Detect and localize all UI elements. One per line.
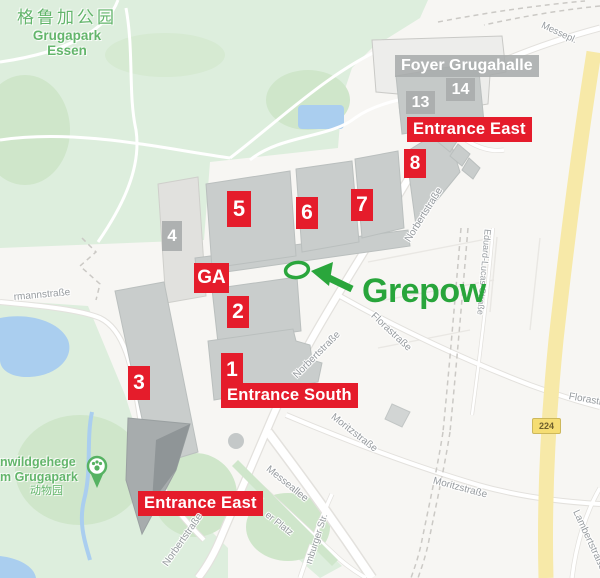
hall-5-badge: 5 <box>227 191 251 227</box>
park-title-cn: 格鲁加公园 <box>2 8 132 28</box>
park-title-en1: Grugapark <box>2 28 132 44</box>
foyer-grugahalle-label: Foyer Grugahalle <box>395 55 539 77</box>
zoo-label-cn: 动物园 <box>0 485 86 498</box>
park-title: 格鲁加公园 Grugapark Essen <box>2 8 132 59</box>
hall-5-building <box>206 171 296 268</box>
entrance-east-bottom-label: Entrance East <box>138 491 263 516</box>
hall-6-badge: 6 <box>296 197 318 229</box>
hall-3-badge: 3 <box>128 366 150 400</box>
hall-ga-badge: GA <box>194 263 229 293</box>
hall-13-badge: 13 <box>406 91 435 114</box>
grepow-annotation: Grepow <box>362 272 486 311</box>
hall-7-badge: 7 <box>351 189 373 221</box>
hall-2-badge: 2 <box>227 296 249 328</box>
route-badge-224: 224 <box>532 418 561 434</box>
map: 格鲁加公园 Grugapark Essen nwildgehege m Grug… <box>0 0 600 578</box>
zoo-label: nwildgehege m Grugapark 动物园 <box>0 455 86 498</box>
hall-4-badge: 4 <box>162 221 182 251</box>
zoo-label-line1: nwildgehege <box>0 455 86 470</box>
park-title-en2: Essen <box>2 43 132 59</box>
hall-1-badge: 1 <box>221 353 243 387</box>
hall-14-badge: 14 <box>446 78 475 101</box>
entrance-east-top-label: Entrance East <box>407 117 532 142</box>
entrance-south-label: Entrance South <box>221 383 358 408</box>
hall-8-badge: 8 <box>404 149 426 178</box>
zoo-label-line2: m Grugapark <box>0 470 86 485</box>
